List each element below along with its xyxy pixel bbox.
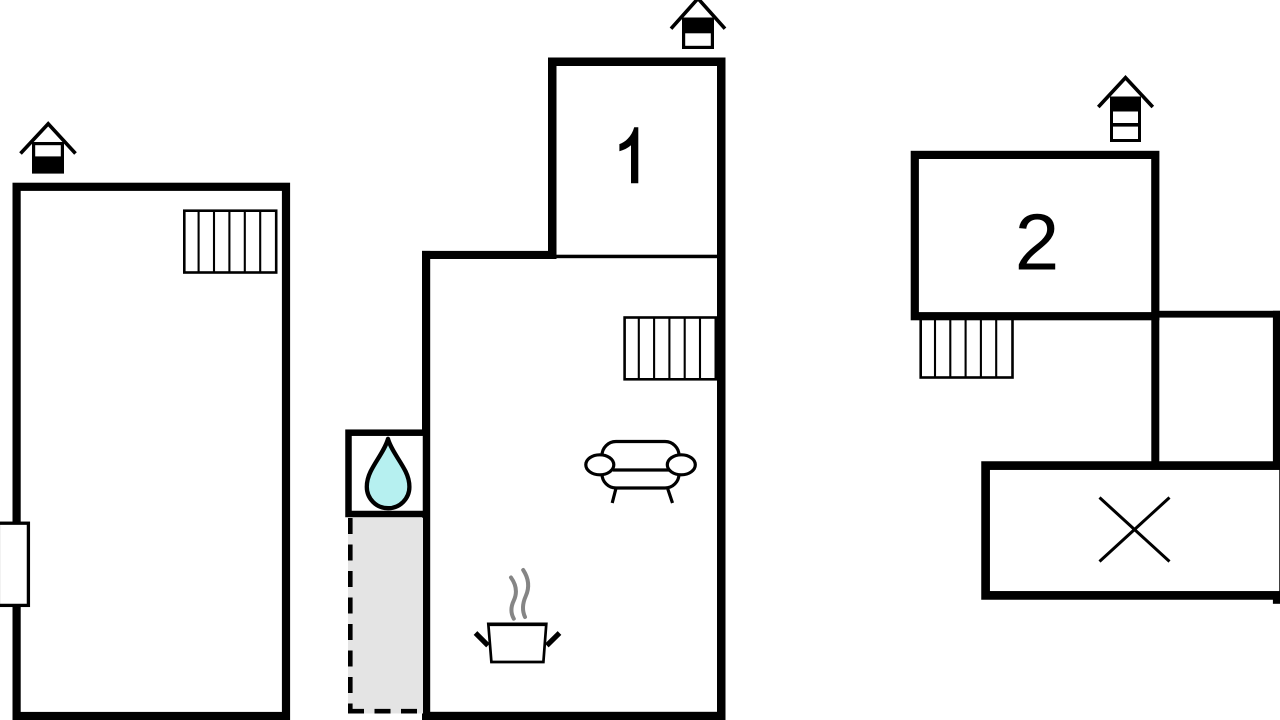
svg-text:2: 2 <box>1015 198 1060 287</box>
